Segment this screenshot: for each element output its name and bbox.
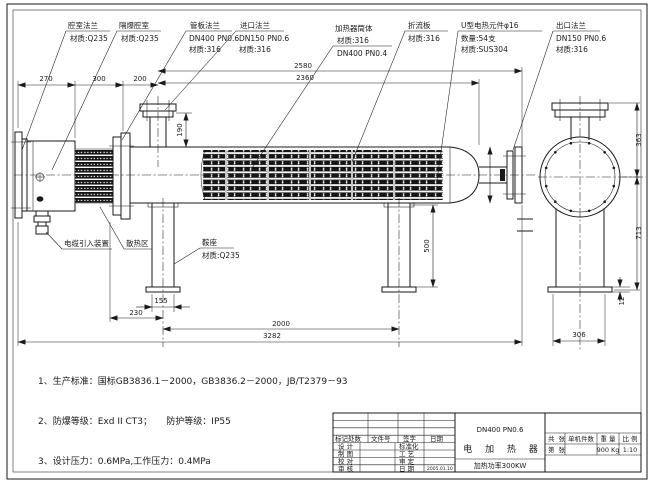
dim-190: 190	[176, 123, 184, 136]
tubesheet-flange-part	[109, 133, 134, 219]
info-sheet-no: 第 张	[548, 445, 566, 454]
callout-explosion-chamber-material: 材质:Q235	[121, 33, 159, 43]
dim-2580: 2580	[294, 62, 312, 70]
callout-tubesheet-flange-material: 材质:316	[189, 44, 221, 54]
dim-155: 155	[154, 297, 167, 305]
callout-saddle-material: 材质:Q235	[202, 250, 240, 260]
info-total-sheets: 共 张	[548, 434, 566, 443]
callout-heating-element-material: 材质:SUS304	[461, 44, 508, 54]
callout-outlet-flange: 出口法兰 DN150 PN0.6 材质:316	[513, 20, 606, 150]
product-power: 加热功率300KW	[474, 461, 527, 470]
callout-explosion-chamber-title: 隔爆腔室	[119, 20, 149, 30]
dim-2000: 2000	[272, 320, 290, 328]
callout-outlet-flange-spec: DN150 PN0.6	[556, 34, 606, 43]
technical-notes: 1、生产标准：国标GB3836.1－2000，GB3836.2－2000，JB/…	[38, 350, 338, 483]
saddle-right-part	[382, 198, 416, 347]
info-weight-label: 重 量	[600, 435, 616, 443]
dim-12: 12	[618, 297, 626, 306]
callouts: 腔室法兰 材质:Q235 隔爆腔室 材质:Q235 管板法兰 DN400 PN0…	[22, 20, 606, 264]
cable-gland-part	[34, 211, 50, 234]
dimensions: 270 300 200 2580 2360 190 155 230 2000 3…	[18, 62, 643, 346]
dim-200: 200	[133, 75, 146, 83]
dim-306: 306	[572, 331, 586, 339]
product-spec: DN400 PN0.6	[477, 426, 524, 434]
inlet-flange-part	[140, 96, 176, 167]
callout-inlet-flange-spec: DN150 PN0.6	[239, 34, 289, 43]
callout-baffle-material: 材质:316	[408, 33, 440, 43]
callout-outlet-flange-material: 材质:316	[556, 44, 588, 54]
dim-3282: 3282	[263, 332, 281, 340]
info-scale-value: 1:10	[623, 446, 638, 454]
end-view	[538, 96, 646, 350]
dim-363: 363	[635, 133, 643, 146]
dim-500: 500	[423, 239, 431, 252]
product-name: 电 加 热 器	[463, 443, 543, 455]
element-bundle-part	[201, 150, 443, 200]
callout-cooling-zone-title: 散热区	[126, 238, 149, 248]
role-audit: 审 核	[338, 464, 354, 473]
main-view	[11, 96, 537, 347]
callout-cable-gland: 电缆引入装置	[46, 232, 112, 249]
note-line: 3、设计压力：0.6MPa,工作压力：0.4MPa	[38, 456, 338, 469]
role-date-label: 日 期	[399, 465, 415, 473]
info-unit-parts: 单机件数	[568, 434, 595, 443]
callout-outlet-flange-title: 出口法兰	[556, 20, 586, 30]
callout-heating-element-qty: 数量:54支	[461, 33, 496, 43]
drawing-sheet: 270 300 200 2580 2360 190 155 230 2000 3…	[0, 0, 654, 483]
info-weight-value: 900 Kg	[597, 446, 620, 454]
saddle-left-part	[146, 198, 180, 347]
explosion-chamber-part	[27, 141, 75, 211]
callout-baffle-title: 折流板	[408, 20, 431, 30]
callout-heater-shell-spec: DN400 PN0.4	[337, 49, 387, 58]
dim-230: 230	[129, 309, 142, 317]
callout-heater-shell: 加热器筒体 材质:316 DN400 PN0.4	[252, 23, 392, 168]
callout-heating-element-title: U型电热元件φ16	[461, 20, 519, 30]
callout-heating-element: U型电热元件φ16 数量:54支 材质:SUS304	[437, 20, 542, 180]
callout-saddle-title: 鞍座	[202, 237, 217, 247]
note-line: 1、生产标准：国标GB3836.1－2000，GB3836.2－2000，JB/…	[38, 376, 338, 389]
callout-inlet-flange-material: 材质:316	[239, 44, 271, 54]
title-block: 标记处数 文件号 签字 日期 设 计 制 图 校 对 审 核 标准化 工 艺 审…	[333, 413, 641, 473]
info-scale-label: 比 例	[622, 434, 637, 443]
callout-chamber-flange-material: 材质:Q235	[70, 33, 108, 43]
callout-cable-gland-title: 电缆引入装置	[64, 238, 109, 248]
callout-chamber-flange-title: 腔室法兰	[68, 20, 98, 30]
dim-2360: 2360	[296, 74, 314, 82]
dim-270: 270	[39, 75, 52, 83]
rev-col-docno: 文件号	[371, 434, 391, 443]
note-line: 2、防爆等级：Exd II CT3； 防护等级：IP55	[38, 416, 338, 429]
projection-marks	[517, 219, 533, 231]
callout-inlet-flange-title: 进口法兰	[240, 20, 270, 30]
rev-col-date: 日期	[430, 435, 444, 443]
callout-heater-shell-title: 加热器筒体	[335, 23, 373, 33]
role-date-value: 2005.01.10	[427, 466, 453, 472]
callout-heater-shell-material: 材质:316	[337, 35, 369, 45]
callout-saddle: 鞍座 材质:Q235	[174, 237, 240, 264]
cooling-zone-part	[75, 149, 113, 203]
callout-tubesheet-flange-title: 管板法兰	[190, 20, 220, 30]
dim-713: 713	[635, 226, 643, 239]
